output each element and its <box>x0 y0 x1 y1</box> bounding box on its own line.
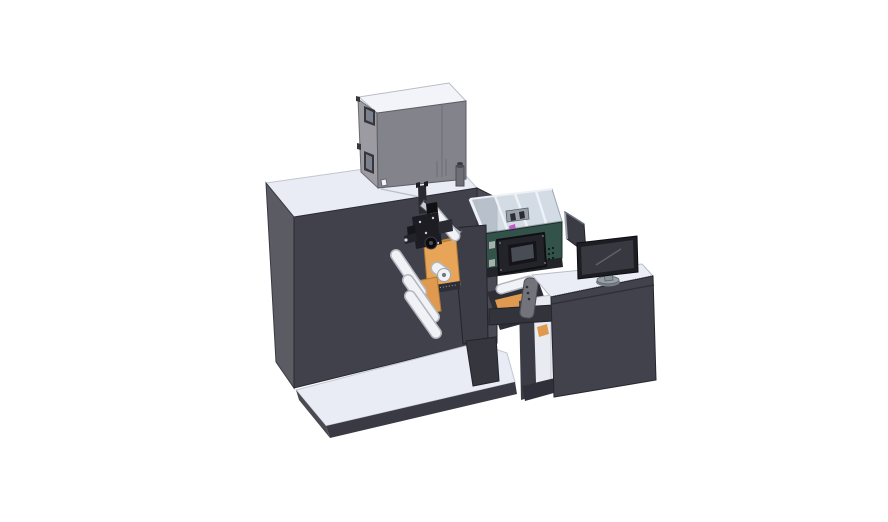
exhaust-cylinder-knob <box>457 162 463 165</box>
sprocket-hub <box>429 241 433 245</box>
mech-screw-3 <box>425 232 427 234</box>
mech-horn-1 <box>416 182 420 188</box>
box-corner-plate <box>381 179 387 186</box>
box-window-2-glass <box>366 154 372 171</box>
handle-dot-2 <box>527 292 530 295</box>
mech-block-top <box>426 202 438 214</box>
engine-vent-square-2 <box>489 259 495 267</box>
box-hinge-2 <box>357 143 361 150</box>
panel-dot-6 <box>552 257 554 259</box>
panel-screw-4 <box>544 262 546 264</box>
handle-dot-1 <box>526 286 529 289</box>
box-front-face <box>377 101 466 188</box>
panel-dot-1 <box>548 248 550 250</box>
engine-vent-square-1 <box>489 241 495 249</box>
exhaust-cylinder-body <box>456 166 464 186</box>
mech-arm-pin <box>404 238 407 241</box>
panel-screw-2 <box>500 269 502 271</box>
panel-dot-2 <box>552 247 554 249</box>
engine-carriage-detail-1 <box>510 213 516 221</box>
cabinet-left-face <box>266 183 294 388</box>
panel-dot-3 <box>548 253 550 255</box>
engine-carriage-detail-2 <box>519 211 525 219</box>
roll-core-hub <box>442 273 446 277</box>
handle-dot-3 <box>528 298 531 301</box>
machine-3d-render <box>0 0 888 522</box>
panel-screw-3 <box>542 235 544 237</box>
panel-dot-5 <box>548 258 550 260</box>
cad-render-stage <box>0 0 888 522</box>
box-hinge-1 <box>356 96 360 102</box>
panel-dot-4 <box>552 252 554 254</box>
mech-screw-1 <box>419 221 421 223</box>
stand-leg <box>524 316 536 385</box>
panel-screw-1 <box>499 242 501 244</box>
electronics-box <box>356 83 466 188</box>
mech-horn-2 <box>424 181 428 187</box>
mech-screw-2 <box>432 217 434 219</box>
